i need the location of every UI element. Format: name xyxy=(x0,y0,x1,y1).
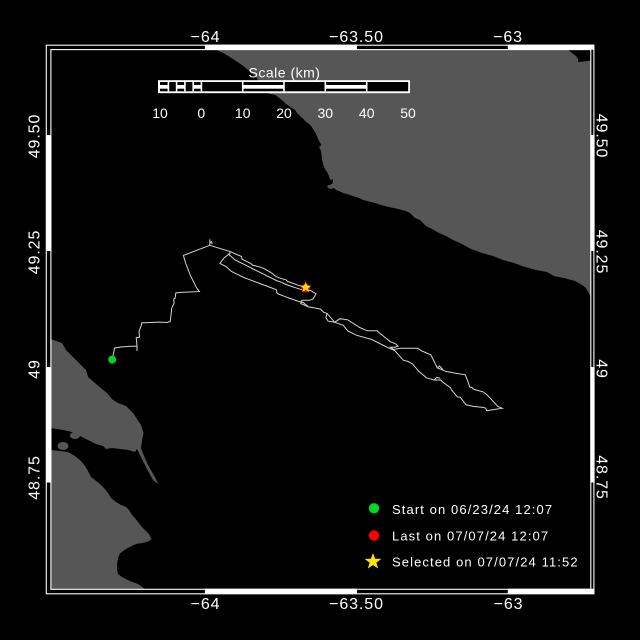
svg-text:49: 49 xyxy=(27,359,44,379)
svg-text:Scale (km): Scale (km) xyxy=(249,65,321,81)
svg-text:50: 50 xyxy=(400,105,416,121)
svg-text:49: 49 xyxy=(593,359,610,379)
svg-text:−64: −64 xyxy=(191,29,221,46)
svg-text:30: 30 xyxy=(318,105,334,121)
svg-text:40: 40 xyxy=(359,105,375,121)
svg-text:48.75: 48.75 xyxy=(593,455,610,500)
svg-text:10: 10 xyxy=(235,105,251,121)
svg-text:0: 0 xyxy=(197,105,205,121)
svg-text:49.50: 49.50 xyxy=(27,114,44,159)
svg-text:−63: −63 xyxy=(493,29,523,46)
svg-text:−63: −63 xyxy=(494,596,524,613)
svg-text:49.25: 49.25 xyxy=(593,230,610,275)
svg-text:Last on 07/07/24 12:07: Last on 07/07/24 12:07 xyxy=(392,529,549,544)
svg-text:10: 10 xyxy=(152,105,168,121)
svg-text:−63.50: −63.50 xyxy=(329,596,384,613)
svg-text:49.50: 49.50 xyxy=(593,114,610,159)
svg-text:48.75: 48.75 xyxy=(27,455,44,500)
svg-text:49.25: 49.25 xyxy=(27,230,44,275)
svg-text:−64: −64 xyxy=(191,596,221,613)
svg-text:Start on 06/23/24 12:07: Start on 06/23/24 12:07 xyxy=(392,502,553,517)
svg-text:−63.50: −63.50 xyxy=(329,29,384,46)
svg-text:20: 20 xyxy=(276,105,292,121)
svg-text:Selected on 07/07/24 11:52: Selected on 07/07/24 11:52 xyxy=(392,555,579,570)
